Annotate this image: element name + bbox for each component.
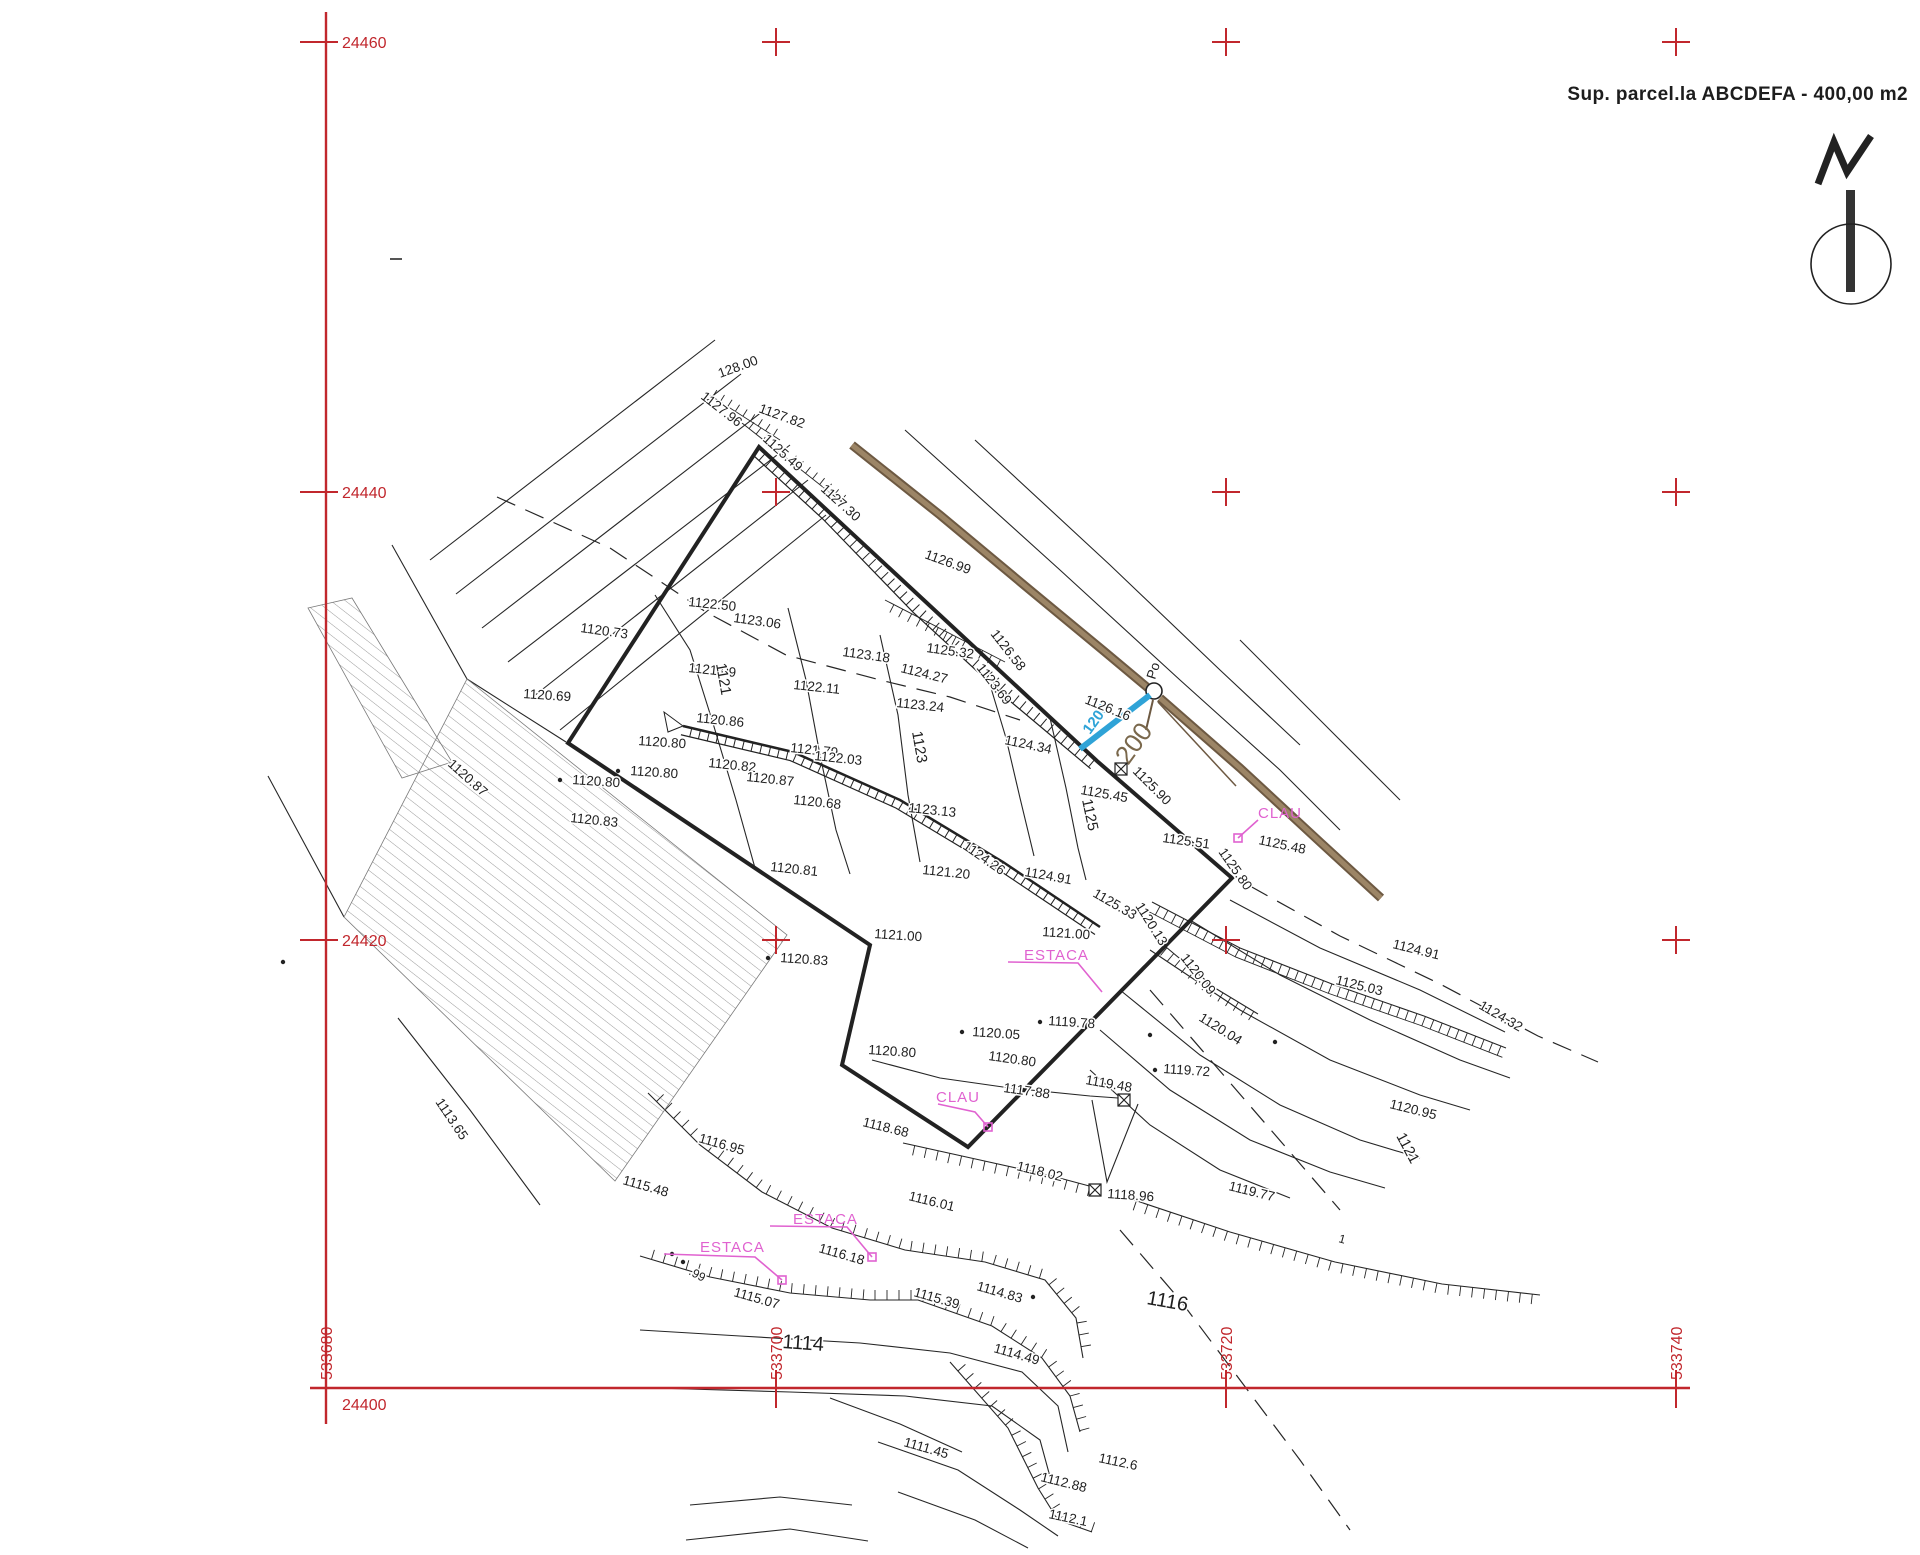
elevation-label: 1125.03: [1334, 972, 1384, 998]
elevation-label: 1127.82: [757, 401, 807, 431]
grid-label-y: 24460: [342, 35, 387, 52]
elevation-label: 1120.83: [780, 950, 829, 968]
elevation-label: 1120.80: [630, 763, 679, 781]
elevation-label: 1120.87: [746, 769, 795, 789]
pipe-line: [1146, 700, 1153, 730]
grid-label-y: 24420: [342, 933, 387, 950]
contour-line: [268, 776, 344, 917]
elevation-label: 1124.32: [1477, 998, 1526, 1035]
elevation-label: 1120.05: [972, 1024, 1021, 1042]
elevation-label: 1119.78: [1048, 1013, 1096, 1031]
magenta-label: ESTACA: [1024, 947, 1089, 964]
spot-point: [681, 1260, 685, 1264]
estaca-leader: [1008, 962, 1102, 992]
elevation-label: 1124.34: [1003, 732, 1053, 757]
grid-cross: [762, 478, 790, 506]
elevation-label: 1125.33: [1091, 886, 1140, 923]
elevation-label: 1120.68: [793, 792, 842, 812]
elevation-label: 1121.00: [874, 926, 923, 944]
elevation-label: 1114: [782, 1331, 825, 1356]
spot-point: [1031, 1295, 1035, 1299]
elevation-label: 1115.39: [912, 1284, 961, 1311]
elevation-label: 1119.72: [1163, 1061, 1211, 1079]
elevation-label: 1120.04: [1196, 1010, 1245, 1048]
elevation-label: 1120.95: [1388, 1096, 1438, 1122]
elevation-label: 1125.90: [1130, 764, 1174, 808]
survey-plan-page: Sup. parcel.la ABCDEFA - 400,00 m2 24460…: [0, 0, 1920, 1555]
scarp-line: [1125, 1197, 1540, 1295]
elevation-label: 1125.51: [1162, 830, 1211, 852]
elevation-label: 1123: [908, 730, 930, 765]
clau-leader: [938, 1104, 988, 1127]
spot-point: [1038, 1020, 1042, 1024]
elevation-label: 1126.99: [923, 547, 973, 577]
contour-line: [988, 678, 1034, 856]
elevation-label: 1117.88: [1003, 1080, 1051, 1101]
elevation-label: 1112.6: [1097, 1450, 1139, 1473]
elevation-label: 1120.80: [988, 1048, 1037, 1070]
fence-inner: [1160, 698, 1381, 898]
elevation-label: 1124.91: [1023, 864, 1073, 887]
clau-leader: [1238, 820, 1258, 838]
elevation-label: 1121.00: [1042, 924, 1091, 942]
magenta-label: ESTACA: [793, 1211, 858, 1228]
grid-cross: [1662, 926, 1690, 954]
pipe-line: [1158, 702, 1236, 786]
inner-wall: [683, 726, 1100, 927]
grid-label-x: 533720: [1219, 1327, 1236, 1380]
spot-point: [960, 1030, 964, 1034]
grid-cross: [1212, 28, 1240, 56]
contour-line: [872, 1060, 1118, 1098]
spot-point: [281, 960, 285, 964]
north-arrow: [1811, 136, 1891, 304]
contour-line: [690, 1497, 852, 1505]
grid-label-x: 533680: [319, 1327, 336, 1380]
elevation-label: 1125.48: [1257, 832, 1307, 857]
elevation-label: 1123.06: [733, 610, 782, 632]
scarp-line: [648, 1093, 1083, 1358]
grid-cross: [1662, 28, 1690, 56]
contour-line: [975, 440, 1300, 745]
elevation-label: 1115.07: [732, 1284, 781, 1311]
contour-line: [686, 1529, 868, 1541]
elevation-label: 1123.18: [842, 644, 891, 666]
elevation-label: .99: [687, 1264, 709, 1284]
contour-line: [1092, 1100, 1138, 1182]
elevation-label: 1120.73: [580, 620, 629, 642]
elevation-label: 1118.68: [861, 1114, 910, 1140]
elevation-label: 1116.01: [907, 1188, 956, 1214]
contour-line: [1050, 718, 1086, 880]
hachure-ticks: [652, 1250, 1090, 1431]
elevation-label: 1127.96: [698, 389, 745, 430]
elevation-label: 1120.86: [696, 710, 745, 730]
elevation-label: 1124.27: [899, 660, 949, 686]
elevation-label: 1: [1337, 1231, 1347, 1246]
grid-label-x: 533740: [1669, 1327, 1686, 1380]
elevation-label: 1112.1: [1047, 1506, 1089, 1529]
elevation-label: 1116.18: [817, 1240, 866, 1267]
grid-cross: [762, 28, 790, 56]
elevation-label: 1111.45: [902, 1434, 950, 1461]
elevation-label: 1113.65: [433, 1095, 472, 1142]
elevation-label: 1125: [1078, 797, 1101, 832]
elevation-label: 1114.49: [992, 1340, 1041, 1367]
inner-wall-tip: [664, 712, 683, 732]
elevation-label: 1118.02: [1015, 1158, 1064, 1184]
station-marker: [1118, 1094, 1130, 1106]
spot-point: [1273, 1040, 1277, 1044]
spot-point: [1153, 1068, 1157, 1072]
elevation-label: 1112.88: [1039, 1469, 1088, 1495]
station-marker: [1089, 1184, 1101, 1196]
elevation-label: 1127.30: [818, 481, 864, 524]
contour-line: [482, 408, 767, 628]
elevation-label: 1120.69: [523, 686, 572, 704]
contour-line: [508, 445, 790, 662]
hachure-ticks: [1133, 1201, 1532, 1304]
grid-label-y: 24440: [342, 485, 387, 502]
elevation-label: 1119.48: [1084, 1072, 1133, 1095]
magenta-annotations: CLAUCLAUESTACAESTACAESTACA: [664, 805, 1302, 1284]
dashed-limit-line: [497, 497, 1020, 720]
grid-cross: [1212, 478, 1240, 506]
hatched-strip: [308, 598, 452, 778]
elevation-label: 1118.96: [1107, 1186, 1155, 1204]
elevation-label: 1116: [1145, 1287, 1190, 1316]
scarp-line: [903, 1143, 1093, 1187]
magenta-label: CLAU: [1258, 805, 1302, 822]
plan-canvas: 2446024440244202440053368053370053372053…: [0, 0, 1920, 1555]
contour-line: [456, 374, 741, 594]
contour-line: [1190, 920, 1510, 1078]
contour-line: [430, 340, 715, 560]
elevation-label: 1124.91: [1391, 936, 1441, 962]
grid-cross: [1662, 478, 1690, 506]
elevation-label: 1121.20: [922, 862, 971, 882]
elevation-label: 1122.50: [688, 594, 737, 614]
spot-point: [616, 769, 620, 773]
elevation-label: 1122.11: [793, 677, 841, 697]
magenta-label: ESTACA: [700, 1239, 765, 1256]
spot-point: [558, 778, 562, 782]
spot-point: [766, 956, 770, 960]
estaca-leader: [664, 1254, 782, 1280]
elevation-label: 1120.81: [770, 859, 819, 879]
station-marker: [1115, 763, 1127, 775]
north-needle: [1846, 190, 1855, 292]
contour-line: [878, 1442, 1058, 1536]
grid-label-y: 24400: [342, 1397, 387, 1414]
grid-cross: [1212, 926, 1240, 954]
elevation-label: 1115.48: [621, 1172, 670, 1199]
dashed-limit-line: [1150, 990, 1340, 1210]
contour-line: [655, 1388, 1052, 1484]
elevation-label: 1123.24: [896, 695, 946, 715]
contour-line: [898, 1492, 1028, 1548]
scarp-line: [640, 1256, 1080, 1432]
hachure-ticks: [657, 1094, 1091, 1346]
well-label: Po: [1144, 661, 1163, 681]
inner-wall-hatch: [690, 728, 1093, 930]
magenta-label: CLAU: [936, 1089, 980, 1106]
contour-line: [392, 545, 467, 679]
dashed-limit-line: [1250, 886, 1598, 1062]
elevation-label: 1120.80: [638, 733, 687, 751]
elevation-label: 1120.09: [1178, 951, 1219, 998]
hachure-ticks: [958, 1364, 1095, 1531]
contour-line: [1100, 1030, 1385, 1188]
elevation-label: 1114.83: [975, 1278, 1024, 1305]
spot-point: [1148, 1033, 1152, 1037]
north-n-glyph: [1818, 136, 1871, 184]
elevation-label: 1120.13: [1132, 900, 1170, 948]
elevation-label: 1121: [1392, 1130, 1422, 1166]
elevation-label: 1120.80: [868, 1042, 917, 1060]
contour-line: [1240, 640, 1400, 800]
